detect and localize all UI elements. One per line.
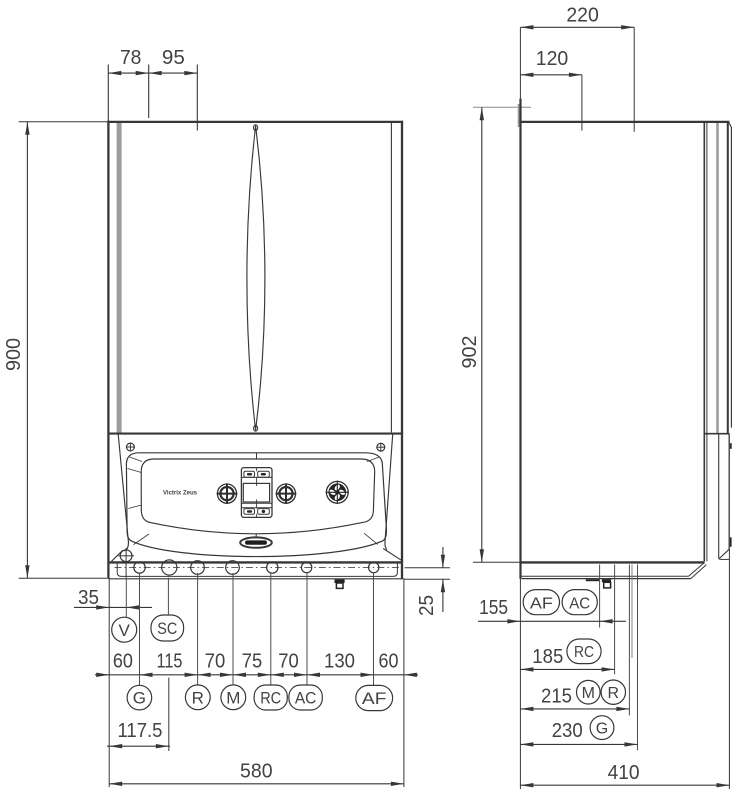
svg-text:Victrix Zeus: Victrix Zeus bbox=[163, 490, 197, 497]
svg-text:G: G bbox=[596, 720, 608, 737]
svg-text:M: M bbox=[582, 685, 595, 702]
svg-text:SC: SC bbox=[157, 619, 177, 638]
svg-text:230: 230 bbox=[552, 720, 583, 742]
svg-text:R: R bbox=[192, 688, 204, 707]
svg-text:RC: RC bbox=[574, 644, 594, 661]
svg-text:V: V bbox=[119, 621, 131, 640]
svg-text:215: 215 bbox=[541, 685, 572, 707]
svg-text:AF: AF bbox=[362, 689, 387, 708]
svg-text:185: 185 bbox=[532, 646, 563, 668]
svg-text:410: 410 bbox=[608, 762, 640, 784]
svg-text:AF: AF bbox=[530, 595, 553, 612]
svg-text:900: 900 bbox=[3, 338, 25, 371]
svg-text:155: 155 bbox=[479, 597, 508, 619]
svg-text:R: R bbox=[608, 685, 620, 702]
svg-text:95: 95 bbox=[162, 47, 185, 69]
svg-text:25: 25 bbox=[416, 595, 438, 616]
svg-text:70: 70 bbox=[278, 650, 299, 672]
svg-text:AC: AC bbox=[295, 689, 317, 708]
svg-text:35: 35 bbox=[78, 587, 99, 609]
svg-text:117.5: 117.5 bbox=[118, 720, 163, 742]
svg-text:580: 580 bbox=[240, 761, 273, 783]
svg-text:78: 78 bbox=[120, 47, 142, 69]
svg-text:60: 60 bbox=[113, 650, 133, 672]
svg-text:M: M bbox=[226, 688, 240, 707]
svg-text:RC: RC bbox=[260, 689, 281, 708]
svg-text:G: G bbox=[133, 689, 146, 708]
svg-text:120: 120 bbox=[536, 48, 569, 70]
svg-text:60: 60 bbox=[379, 650, 399, 672]
svg-text:130: 130 bbox=[324, 650, 355, 672]
svg-text:115: 115 bbox=[157, 650, 183, 672]
svg-text:902: 902 bbox=[459, 336, 481, 369]
svg-text:75: 75 bbox=[242, 650, 263, 672]
svg-text:AC: AC bbox=[569, 595, 590, 612]
svg-text:70: 70 bbox=[205, 650, 226, 672]
svg-text:220: 220 bbox=[566, 5, 599, 27]
